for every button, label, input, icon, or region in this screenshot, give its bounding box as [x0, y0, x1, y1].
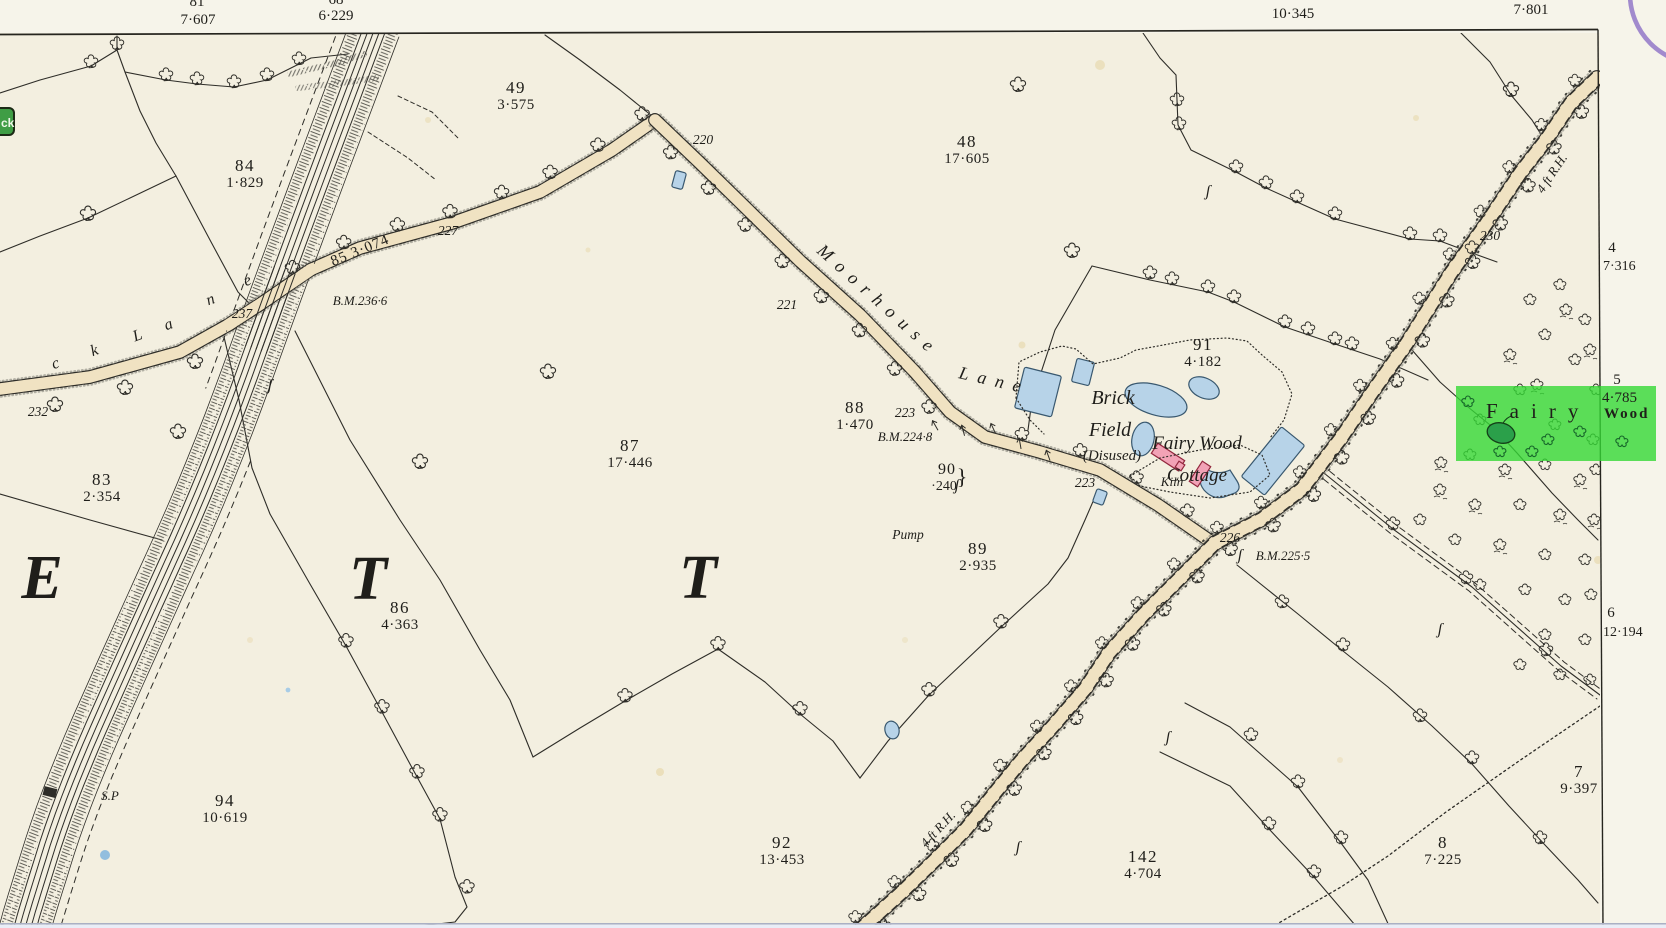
svg-text:237: 237	[232, 306, 254, 321]
svg-text:4: 4	[1608, 240, 1616, 256]
svg-text:Kiln: Kiln	[1160, 474, 1183, 489]
svg-text:81: 81	[190, 0, 205, 10]
svg-text:B.M.236·6: B.M.236·6	[333, 293, 388, 308]
svg-text:227: 227	[438, 223, 460, 238]
svg-text:17·446: 17·446	[607, 455, 653, 471]
svg-text:223: 223	[1075, 475, 1096, 490]
svg-text:B.M.225·5: B.M.225·5	[1256, 548, 1311, 563]
svg-text:E: E	[20, 544, 62, 612]
svg-text:(Disused): (Disused)	[1083, 448, 1141, 464]
svg-text:232: 232	[28, 404, 49, 419]
svg-text:Fairy Wood: Fairy Wood	[1151, 433, 1242, 454]
svg-text:86: 86	[390, 598, 410, 617]
svg-text:84: 84	[235, 156, 255, 175]
svg-text:7·316: 7·316	[1603, 259, 1636, 274]
svg-text:87: 87	[620, 436, 640, 455]
svg-text:90: 90	[938, 461, 956, 478]
svg-text:Field: Field	[1088, 419, 1132, 441]
svg-text:223: 223	[895, 405, 916, 420]
svg-text:1·470: 1·470	[836, 417, 874, 433]
svg-text:9·397: 9·397	[1560, 781, 1598, 797]
svg-text:12·194: 12·194	[1603, 625, 1643, 640]
svg-text:220: 220	[693, 132, 714, 147]
svg-text:13·453: 13·453	[759, 852, 805, 868]
svg-text:ck: ck	[1, 116, 15, 130]
svg-text:88: 88	[845, 398, 865, 417]
svg-text:89: 89	[968, 539, 988, 558]
svg-text:S.P: S.P	[101, 788, 119, 803]
svg-text:6: 6	[1607, 605, 1615, 621]
svg-text:49: 49	[506, 78, 526, 97]
svg-text:48: 48	[957, 132, 977, 151]
svg-text:68: 68	[329, 0, 344, 8]
svg-text:T: T	[349, 545, 389, 613]
svg-text:10·619: 10·619	[202, 810, 248, 826]
svg-text:83: 83	[92, 470, 112, 489]
svg-text:·240: ·240	[931, 479, 957, 494]
svg-text:7·607: 7·607	[181, 12, 216, 28]
svg-text:7: 7	[1574, 762, 1584, 781]
svg-text:4·704: 4·704	[1124, 866, 1162, 882]
svg-text:4·182: 4·182	[1184, 354, 1222, 370]
svg-text:226: 226	[1220, 530, 1241, 545]
svg-text:Pump: Pump	[891, 527, 924, 542]
svg-text:7·801: 7·801	[1514, 2, 1549, 18]
svg-text:Fairy: Fairy	[1486, 399, 1590, 423]
svg-text:92: 92	[772, 833, 792, 852]
svg-text:142: 142	[1128, 847, 1158, 866]
svg-text:T: T	[679, 544, 719, 612]
svg-text:7·225: 7·225	[1424, 852, 1462, 868]
svg-text:1·829: 1·829	[226, 175, 264, 191]
svg-text:94: 94	[215, 791, 235, 810]
svg-text:2·354: 2·354	[83, 489, 121, 505]
svg-text:4·785: 4·785	[1602, 390, 1637, 406]
svg-text:4·363: 4·363	[381, 617, 419, 633]
svg-text:Brick: Brick	[1091, 387, 1135, 409]
svg-text:10·345: 10·345	[1272, 6, 1315, 22]
svg-text:91: 91	[1193, 335, 1213, 354]
svg-text:3·575: 3·575	[497, 97, 535, 113]
svg-text:17·605: 17·605	[944, 151, 990, 167]
svg-text:B.M.224·8: B.M.224·8	[878, 429, 933, 444]
svg-text:Wood: Wood	[1604, 406, 1650, 422]
svg-text:6·229: 6·229	[319, 8, 354, 24]
svg-text:5: 5	[1613, 372, 1621, 388]
svg-text:230: 230	[1480, 228, 1501, 243]
svg-text:8: 8	[1438, 833, 1448, 852]
svg-text:221: 221	[777, 297, 797, 312]
svg-text:2·935: 2·935	[959, 558, 997, 574]
